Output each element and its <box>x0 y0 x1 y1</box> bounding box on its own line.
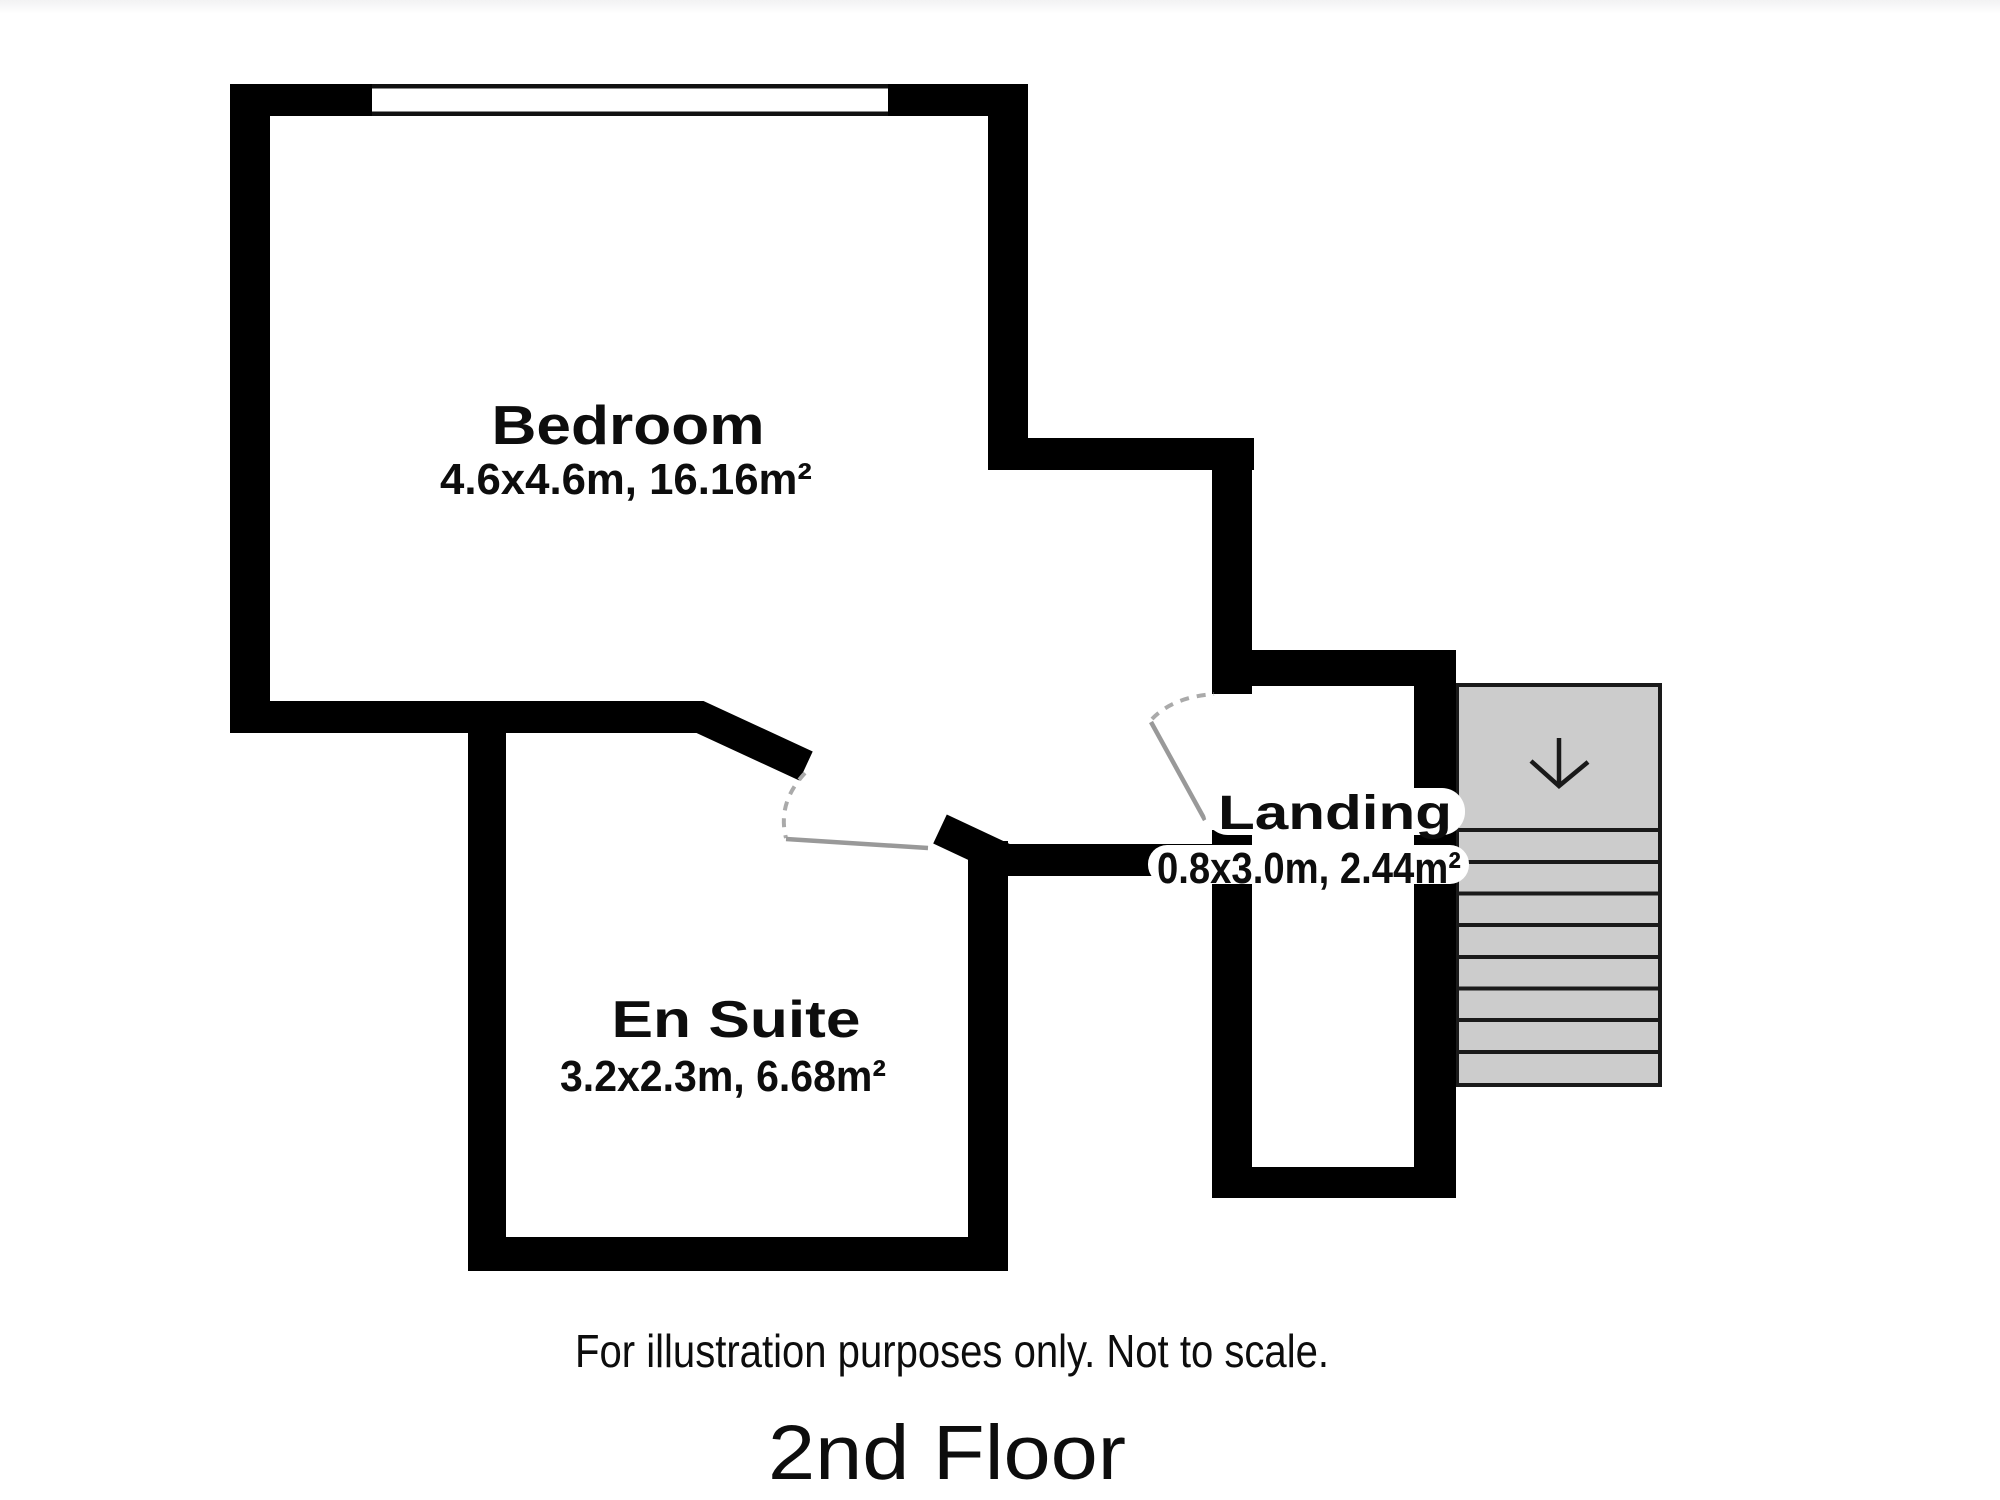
svg-text:En Suite: En Suite <box>612 991 861 1049</box>
svg-text:Bedroom: Bedroom <box>492 394 765 456</box>
svg-text:Landing: Landing <box>1218 787 1452 840</box>
svg-text:4.6x4.6m, 16.16m²: 4.6x4.6m, 16.16m² <box>440 455 812 504</box>
svg-text:For illustration purposes only: For illustration purposes only. Not to s… <box>575 1325 1329 1377</box>
svg-text:0.8x3.0m, 2.44m²: 0.8x3.0m, 2.44m² <box>1157 844 1461 893</box>
svg-text:2nd Floor: 2nd Floor <box>768 1410 1126 1496</box>
svg-text:3.2x2.3m, 6.68m²: 3.2x2.3m, 6.68m² <box>560 1052 886 1101</box>
